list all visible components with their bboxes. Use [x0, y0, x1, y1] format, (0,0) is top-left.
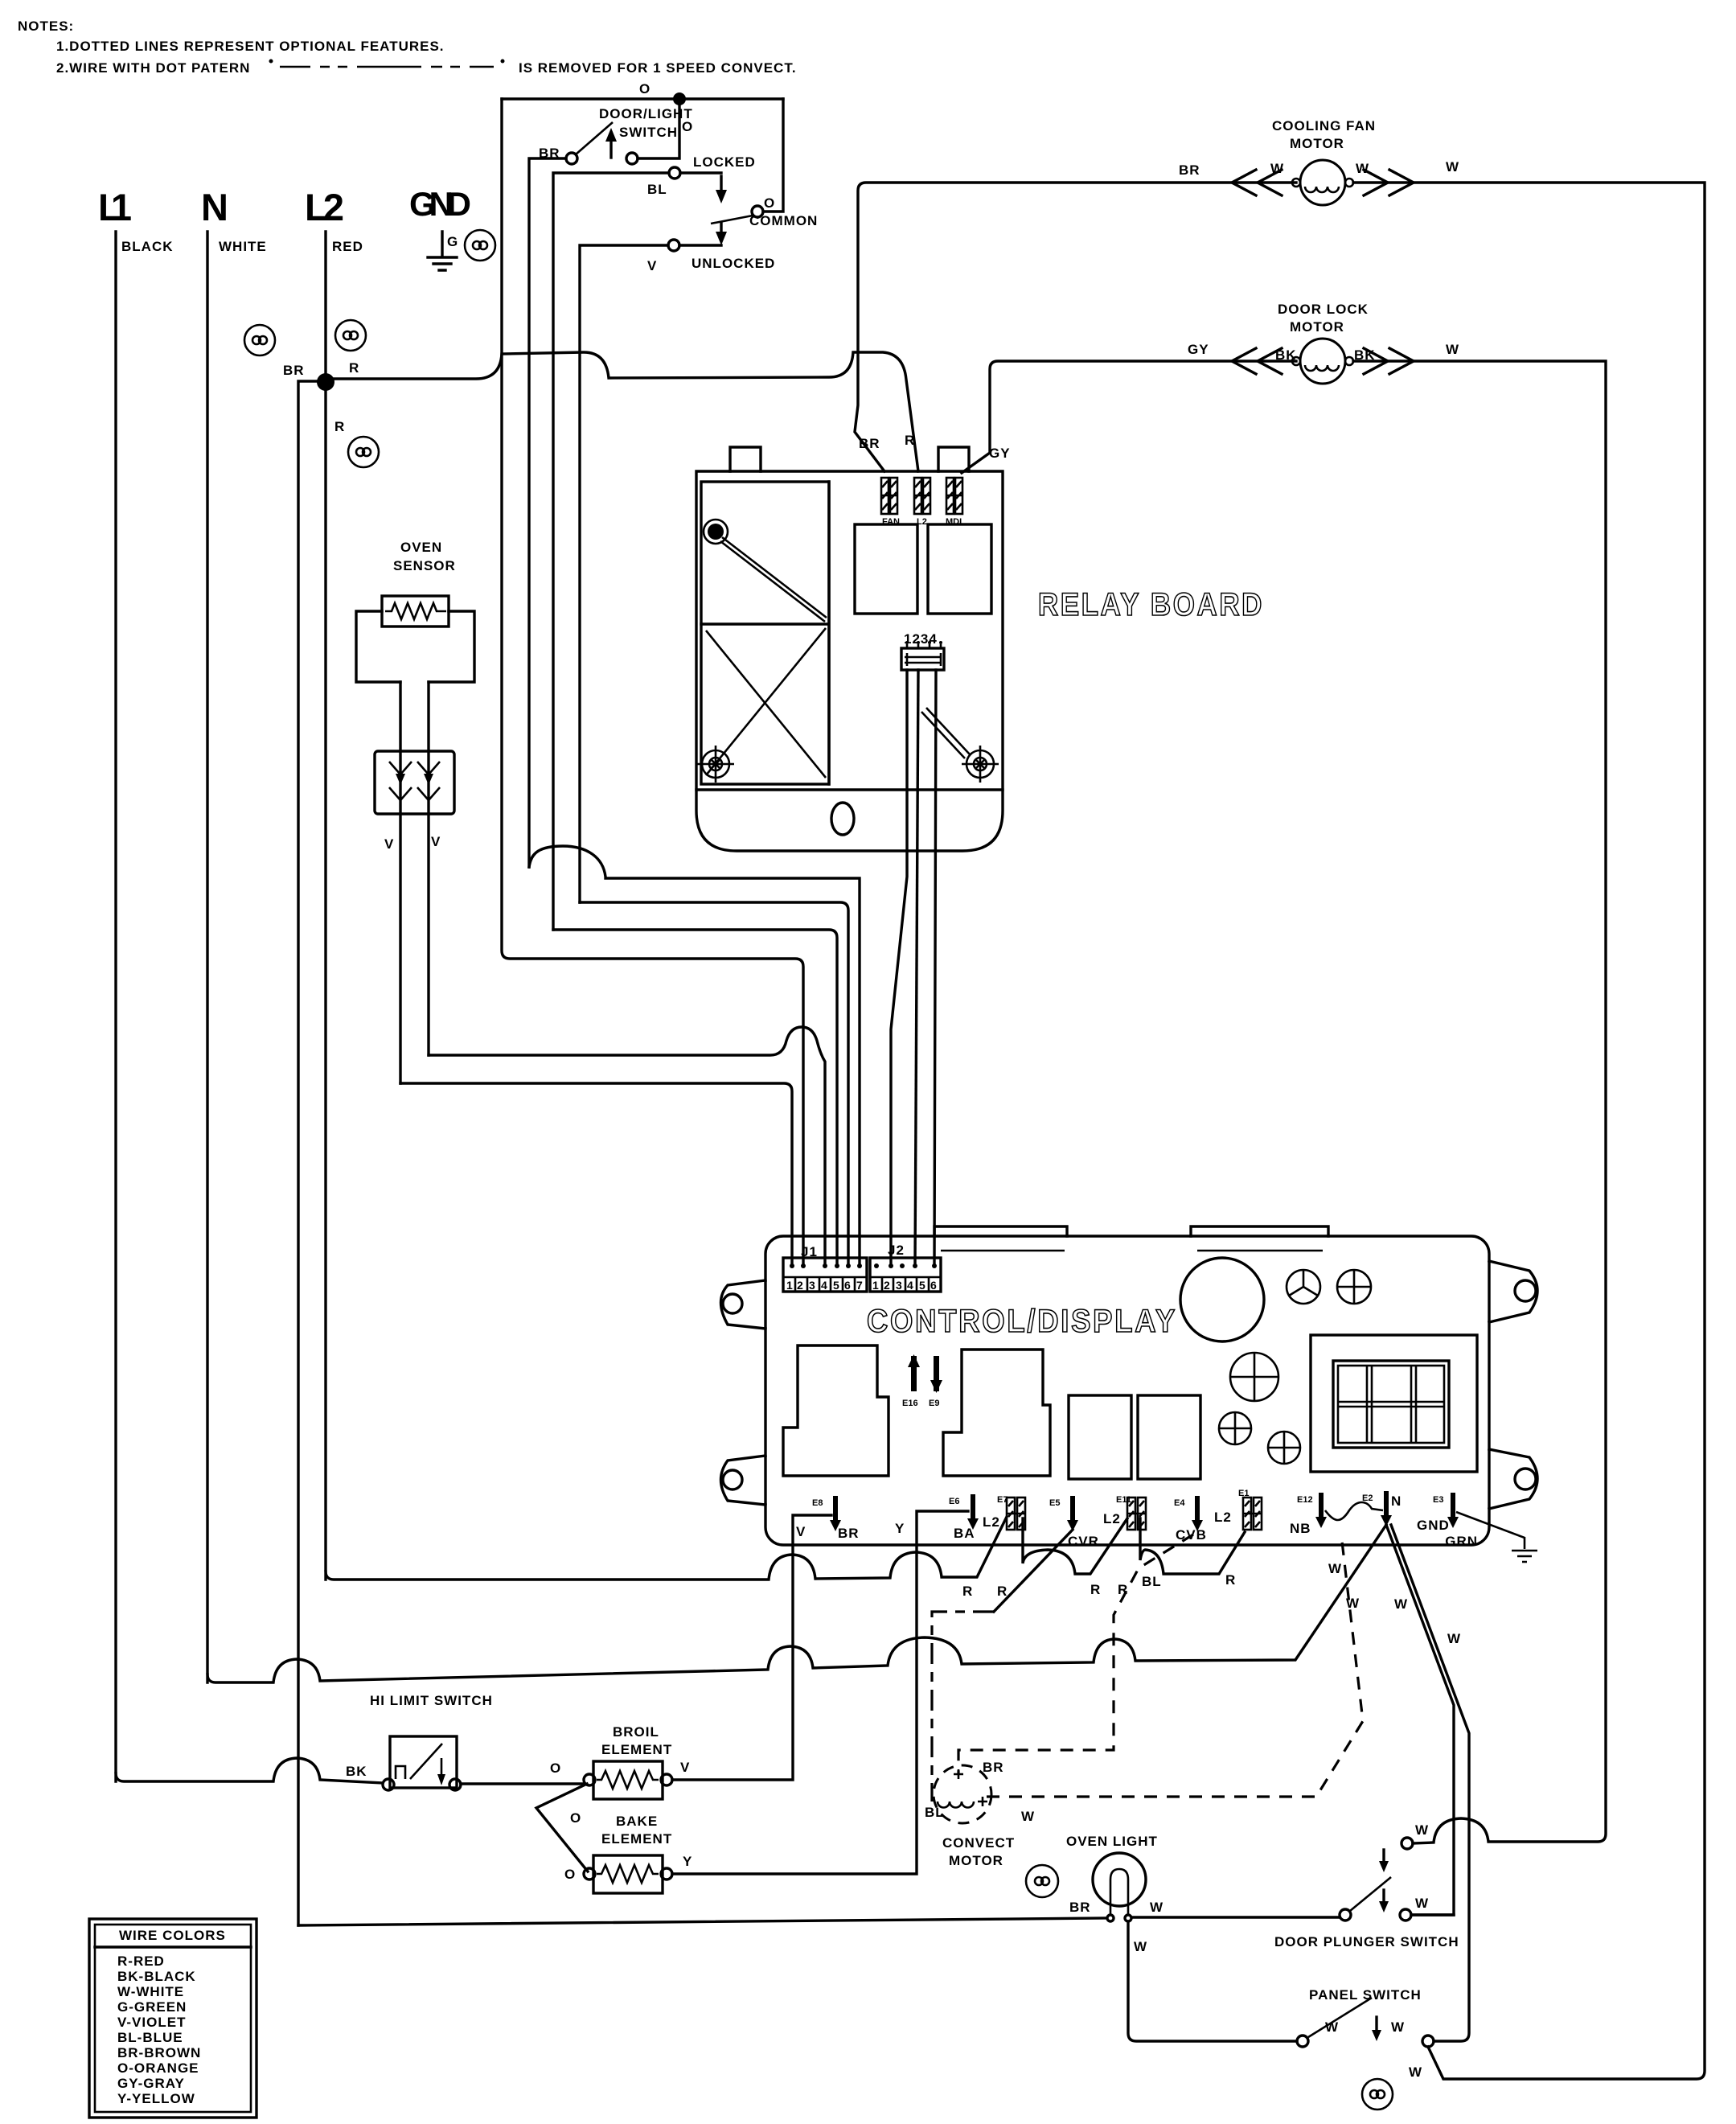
svg-text:BROIL: BROIL — [613, 1724, 659, 1740]
svg-text:BL-BLUE: BL-BLUE — [117, 2030, 183, 2045]
svg-text:G-GREEN: G-GREEN — [117, 1999, 187, 2015]
svg-text:CVR: CVR — [1068, 1534, 1099, 1549]
svg-text:SENSOR: SENSOR — [393, 558, 456, 573]
svg-text:W: W — [1415, 1822, 1429, 1838]
svg-text:V: V — [796, 1524, 806, 1539]
svg-text:W: W — [1446, 159, 1459, 175]
svg-text:BR: BR — [283, 363, 305, 378]
svg-text:V: V — [680, 1760, 690, 1775]
svg-text:BL: BL — [647, 182, 667, 197]
svg-text:GRN: GRN — [1445, 1534, 1478, 1549]
svg-text:E7: E7 — [997, 1495, 1008, 1505]
svg-text:W: W — [1134, 1939, 1147, 1954]
svg-text:6: 6 — [930, 1279, 937, 1292]
svg-text:BK: BK — [346, 1764, 367, 1779]
svg-text:O: O — [639, 81, 650, 97]
svg-text:L1: L1 — [98, 186, 132, 228]
svg-text:W: W — [1325, 2019, 1339, 2035]
svg-text:SWITCH: SWITCH — [619, 125, 678, 140]
svg-text:R: R — [962, 1584, 973, 1599]
svg-text:W: W — [1328, 1561, 1342, 1576]
svg-text:R-RED: R-RED — [117, 1954, 165, 1969]
svg-text:GND: GND — [409, 185, 471, 223]
svg-text:MOTOR: MOTOR — [1290, 136, 1344, 151]
svg-text:E9: E9 — [929, 1399, 939, 1408]
svg-text:DOOR PLUNGER SWITCH: DOOR PLUNGER SWITCH — [1274, 1934, 1459, 1949]
svg-text:Y: Y — [895, 1521, 905, 1536]
svg-text:7: 7 — [856, 1279, 863, 1292]
svg-text:DOOR LOCK: DOOR LOCK — [1278, 302, 1369, 317]
svg-text:L2: L2 — [305, 186, 344, 228]
svg-text:IS REMOVED FOR 1 SPEED CO: IS REMOVED FOR 1 SPEED CONVECT. — [519, 60, 797, 76]
svg-text:BR: BR — [1179, 162, 1200, 178]
svg-text:N: N — [201, 186, 228, 228]
svg-text:Y: Y — [683, 1854, 692, 1869]
svg-text:HI LIMIT SWITCH: HI LIMIT SWITCH — [370, 1693, 493, 1708]
svg-text:4: 4 — [821, 1279, 827, 1292]
svg-text:R: R — [1090, 1582, 1101, 1597]
svg-text:V: V — [431, 834, 441, 849]
svg-text:WIRE COLORS: WIRE COLORS — [119, 1928, 226, 1943]
svg-text:R: R — [1225, 1572, 1236, 1588]
svg-text:R: R — [905, 433, 915, 448]
svg-text:W: W — [1415, 1896, 1429, 1911]
svg-text:W: W — [1391, 2019, 1405, 2035]
svg-text:O: O — [564, 1867, 576, 1882]
svg-text:R: R — [349, 360, 359, 376]
svg-text:2.WIRE WITH DOT PATERN: 2.WIRE WITH DOT PATERN — [56, 60, 250, 76]
svg-text:L2: L2 — [983, 1514, 1000, 1530]
svg-text:ELEMENT: ELEMENT — [601, 1831, 672, 1847]
svg-text:GY-GRAY: GY-GRAY — [117, 2076, 185, 2091]
svg-text:BR: BR — [838, 1526, 860, 1541]
svg-text:BA: BA — [954, 1526, 975, 1541]
svg-text:BAKE: BAKE — [616, 1814, 658, 1829]
svg-text:E4: E4 — [1174, 1498, 1185, 1508]
svg-text:O-ORANGE: O-ORANGE — [117, 2060, 199, 2076]
svg-text:1: 1 — [872, 1279, 879, 1292]
svg-text:ELEMENT: ELEMENT — [601, 1742, 672, 1757]
svg-text:R: R — [997, 1584, 1008, 1599]
svg-text:O: O — [570, 1810, 581, 1826]
svg-text:W: W — [1447, 1631, 1461, 1646]
svg-text:BR: BR — [1069, 1900, 1091, 1915]
svg-text:6: 6 — [844, 1279, 851, 1292]
svg-text:LOCKED: LOCKED — [693, 154, 756, 170]
svg-text:CONVECT: CONVECT — [942, 1835, 1015, 1851]
svg-text:BK-BLACK: BK-BLACK — [117, 1969, 196, 1984]
svg-text:BL: BL — [925, 1805, 945, 1820]
svg-text:V-VIOLET: V-VIOLET — [117, 2015, 186, 2030]
svg-text:MOTOR: MOTOR — [1290, 319, 1344, 335]
svg-text:NB: NB — [1290, 1521, 1311, 1536]
svg-text:GND: GND — [1417, 1518, 1450, 1533]
svg-text:OVEN LIGHT: OVEN LIGHT — [1066, 1834, 1158, 1849]
svg-text:5: 5 — [833, 1279, 839, 1292]
svg-text:W: W — [1356, 161, 1369, 176]
svg-text:E8: E8 — [812, 1498, 823, 1508]
svg-text:GY: GY — [1188, 342, 1209, 357]
svg-text:W: W — [1021, 1809, 1035, 1824]
svg-text:BR-BROWN: BR-BROWN — [117, 2045, 201, 2060]
svg-text:4: 4 — [907, 1279, 913, 1292]
svg-text:E5: E5 — [1049, 1498, 1060, 1508]
svg-text:W: W — [1394, 1596, 1408, 1612]
svg-text:3: 3 — [896, 1279, 902, 1292]
svg-text:V: V — [384, 836, 394, 852]
svg-text:E3: E3 — [1433, 1495, 1443, 1505]
svg-text:WHITE: WHITE — [219, 239, 267, 254]
svg-text:GY: GY — [989, 446, 1011, 461]
svg-text:W-WHITE: W-WHITE — [117, 1984, 184, 1999]
svg-text:E1: E1 — [1238, 1489, 1249, 1498]
svg-text:5: 5 — [919, 1279, 925, 1292]
svg-text:E11: E11 — [1116, 1495, 1131, 1505]
svg-text:Y-YELLOW: Y-YELLOW — [117, 2091, 195, 2106]
svg-text:V: V — [647, 258, 657, 273]
svg-text:3: 3 — [809, 1279, 815, 1292]
svg-text:CONTROL/DISPLAY: CONTROL/DISPLAY — [867, 1304, 1177, 1339]
svg-text:RELAY BOARD: RELAY BOARD — [1038, 587, 1264, 622]
svg-text:E16: E16 — [902, 1399, 918, 1408]
svg-text:PANEL SWITCH: PANEL SWITCH — [1309, 1987, 1422, 2003]
svg-text:2: 2 — [884, 1279, 890, 1292]
svg-text:1.DOTTED LINES REPRESENT OP: 1.DOTTED LINES REPRESENT OPTIONAL FEATUR… — [56, 39, 445, 54]
svg-text:J2: J2 — [888, 1243, 905, 1258]
svg-text:E6: E6 — [949, 1497, 959, 1506]
svg-text:RED: RED — [332, 239, 363, 254]
svg-text:1: 1 — [786, 1279, 793, 1292]
svg-text:G: G — [447, 234, 458, 249]
svg-text:BR: BR — [859, 436, 880, 451]
svg-text:BR: BR — [983, 1760, 1004, 1775]
svg-text:N: N — [1391, 1493, 1402, 1509]
svg-text:UNLOCKED: UNLOCKED — [692, 256, 775, 271]
svg-text:W: W — [1150, 1900, 1163, 1915]
svg-text:W: W — [1409, 2064, 1422, 2080]
svg-text:O: O — [550, 1760, 561, 1776]
svg-text:W: W — [1446, 342, 1459, 357]
svg-text:R: R — [334, 419, 345, 434]
svg-text:O: O — [764, 195, 775, 211]
svg-text:COOLING FAN: COOLING FAN — [1272, 118, 1376, 134]
svg-text:1234: 1234 — [904, 631, 938, 647]
svg-text:E12: E12 — [1297, 1495, 1313, 1505]
svg-text:BL: BL — [1142, 1574, 1162, 1589]
svg-text:2: 2 — [797, 1279, 803, 1292]
svg-text:BLACK: BLACK — [121, 239, 174, 254]
svg-text:L2: L2 — [1214, 1510, 1232, 1525]
svg-text:MOTOR: MOTOR — [949, 1853, 1003, 1868]
svg-text:OVEN: OVEN — [400, 540, 442, 555]
svg-text:NOTES:: NOTES: — [18, 18, 74, 34]
svg-text:L2: L2 — [1103, 1511, 1121, 1526]
svg-text:O: O — [682, 119, 693, 134]
